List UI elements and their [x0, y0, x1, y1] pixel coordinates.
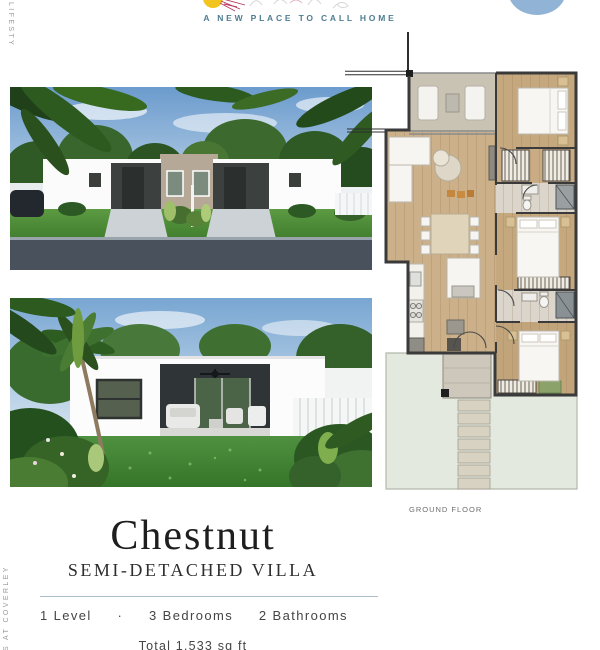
party-wall-lines: [345, 32, 408, 132]
flyer-page: A NEW PLACE TO CALL HOME LIFESTY S AT CO…: [0, 0, 600, 650]
spec-levels: 1 Level: [40, 608, 92, 623]
floor-plan: GROUND FLOOR: [340, 25, 600, 515]
brand-logo-remnant: [190, 0, 360, 12]
spec-bedrooms: 3 Bedrooms: [149, 608, 233, 623]
divider-line: [40, 596, 378, 597]
spec-bathrooms: 2 Bathrooms: [259, 608, 348, 623]
rug: [539, 381, 561, 393]
car: [10, 190, 44, 217]
total-area: Total 1,533 sq ft: [0, 639, 386, 650]
dining-set: [421, 214, 479, 254]
spec-separator-dot: ·: [118, 608, 124, 623]
photo-front-exterior: [10, 87, 372, 270]
entry-porch: [443, 353, 491, 398]
side-caption-top: LIFESTY: [7, 2, 14, 47]
logo-pink-flourish-icon: [290, 0, 302, 3]
spec-row: 1 Level · 3 Bedrooms 2 Bathrooms: [40, 608, 348, 623]
decor-balloon-icon: [508, 0, 566, 15]
photo-rear-exterior: [10, 298, 372, 487]
brand-tagline: A NEW PLACE TO CALL HOME: [150, 13, 450, 23]
walkway-pavers: [458, 400, 490, 489]
villa-type: SEMI-DETACHED VILLA: [0, 560, 386, 581]
logo-spark-lines-icon: [220, 0, 245, 11]
logo-sun-icon: [203, 0, 223, 8]
villa-name: Chestnut: [0, 512, 386, 560]
floor-plan-label: GROUND FLOOR: [409, 505, 482, 514]
